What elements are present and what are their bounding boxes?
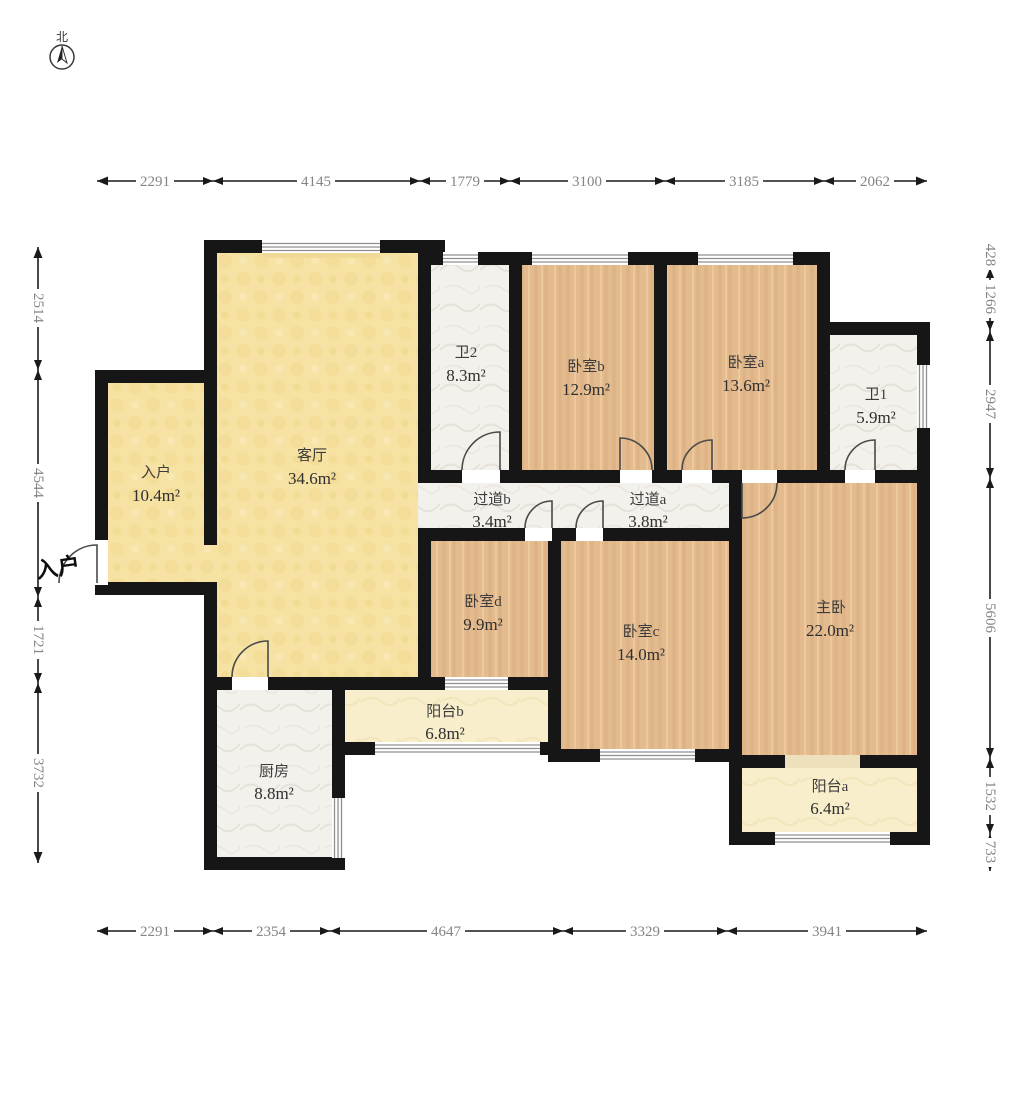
room-living-area: 34.6m²	[288, 469, 336, 488]
bedroom-a-door-threshold	[682, 470, 712, 483]
bath2-door-threshold	[462, 470, 500, 483]
dimension-line-left: 2514 4544 1721 3732	[30, 247, 46, 863]
room-entry-floor	[108, 383, 204, 582]
floor-plan-canvas: 入户 10.4m² 客厅 34.6m² 卫2 8.3m² 卧室b 12.9m² …	[0, 0, 1028, 1115]
compass-north-label: 北	[56, 30, 68, 44]
dim-bottom-5: 3941	[812, 924, 842, 940]
dim-bottom-2: 2354	[256, 924, 287, 940]
floor-plan-page: 入户 10.4m² 客厅 34.6m² 卫2 8.3m² 卧室b 12.9m² …	[0, 0, 1028, 1115]
room-balcony-a-name: 阳台a	[812, 778, 849, 795]
bedroom-b-window	[532, 252, 628, 265]
dim-left-1: 2514	[30, 293, 46, 324]
dim-right-5: 1532	[982, 781, 998, 811]
dim-left-4: 3732	[30, 758, 46, 788]
dim-top-4: 3100	[572, 174, 602, 190]
room-bath1-area: 5.9m²	[856, 408, 896, 427]
compass-needle-dark	[57, 46, 62, 63]
room-hallway-a-name: 过道a	[630, 491, 667, 508]
dim-top-5: 3185	[729, 174, 759, 190]
room-master-name: 主卧	[816, 599, 846, 616]
room-bath2-area: 8.3m²	[446, 366, 486, 385]
room-balcony-b-name: 阳台b	[426, 703, 464, 720]
room-hallway-b-name: 过道b	[473, 491, 511, 508]
dim-bottom-3: 4647	[431, 924, 462, 940]
room-balcony-a-area: 6.4m²	[810, 799, 850, 818]
dim-top-3: 1779	[450, 174, 480, 190]
dim-left-2: 4544	[30, 468, 46, 499]
dim-right-3: 2947	[982, 389, 998, 420]
master-door-threshold	[742, 470, 777, 483]
room-bedroom-b-name: 卧室b	[567, 358, 605, 375]
entry-living-opening	[204, 545, 217, 582]
room-entry-area: 10.4m²	[132, 486, 180, 505]
room-kitchen-name: 厨房	[259, 763, 289, 780]
room-kitchen-area: 8.8m²	[254, 784, 294, 803]
master-balcony-threshold	[785, 755, 860, 768]
room-bedroom-d-name: 卧室d	[464, 593, 502, 610]
room-bedroom-a-area: 13.6m²	[722, 376, 770, 395]
room-hallway-floor	[418, 483, 729, 528]
room-bedroom-d-area: 9.9m²	[463, 615, 503, 634]
dimension-line-top: 2291 4145 1779 3100 3185 2062	[97, 173, 927, 190]
bath2-window	[443, 252, 478, 265]
dim-top-1: 2291	[140, 174, 170, 190]
dim-top-6: 2062	[860, 174, 890, 190]
dim-right-2: 1266	[982, 284, 998, 315]
bedroom-b-door-threshold	[620, 470, 652, 483]
room-bedroom-a-name: 卧室a	[728, 354, 765, 371]
room-master-area: 22.0m²	[806, 621, 854, 640]
dim-right-6: 733	[982, 841, 998, 864]
room-living-floor	[217, 253, 418, 677]
balcony-a-window	[775, 832, 890, 845]
kitchen-door-threshold	[232, 677, 268, 690]
room-master-bedroom-floor	[742, 483, 917, 755]
bedroom-c-window	[600, 749, 695, 762]
bath1-window	[917, 365, 930, 428]
balcony-b-window	[375, 742, 540, 755]
bedroom-c-door-threshold	[576, 528, 603, 541]
room-entry-name: 入户	[141, 464, 171, 481]
kitchen-window	[332, 798, 345, 858]
bedroom-a-window	[698, 252, 793, 265]
room-bath1-name: 卫1	[865, 387, 888, 403]
room-hallway-b-area: 3.4m²	[472, 512, 512, 531]
dimension-line-bottom: 2291 2354 4647 3329 3941	[97, 923, 927, 940]
dim-right-4: 5606	[982, 603, 998, 634]
dim-bottom-4: 3329	[630, 924, 660, 940]
room-balcony-b-area: 6.8m²	[425, 724, 465, 743]
compass-needle-light	[62, 46, 67, 63]
dim-bottom-1: 2291	[140, 924, 170, 940]
bedroom-d-window	[445, 677, 508, 690]
living-room-window	[262, 240, 380, 258]
bath1-door-threshold	[845, 470, 875, 483]
bedroom-d-door-threshold	[525, 528, 552, 541]
entrance-label: 入户	[34, 552, 81, 583]
dim-top-2: 4145	[301, 174, 331, 190]
room-bedroom-c-area: 14.0m²	[617, 645, 665, 664]
room-living-name: 客厅	[297, 447, 327, 464]
room-bath2-name: 卫2	[455, 345, 478, 361]
dimension-line-right: 428 1266 2947 5606 1532 733	[982, 240, 998, 871]
dim-right-1: 428	[982, 244, 998, 267]
dim-left-3: 1721	[30, 625, 46, 655]
compass: 北	[50, 30, 74, 69]
room-bedroom-b-area: 12.9m²	[562, 380, 610, 399]
room-hallway-a-area: 3.8m²	[628, 512, 668, 531]
room-bedroom-c-name: 卧室c	[623, 623, 660, 640]
